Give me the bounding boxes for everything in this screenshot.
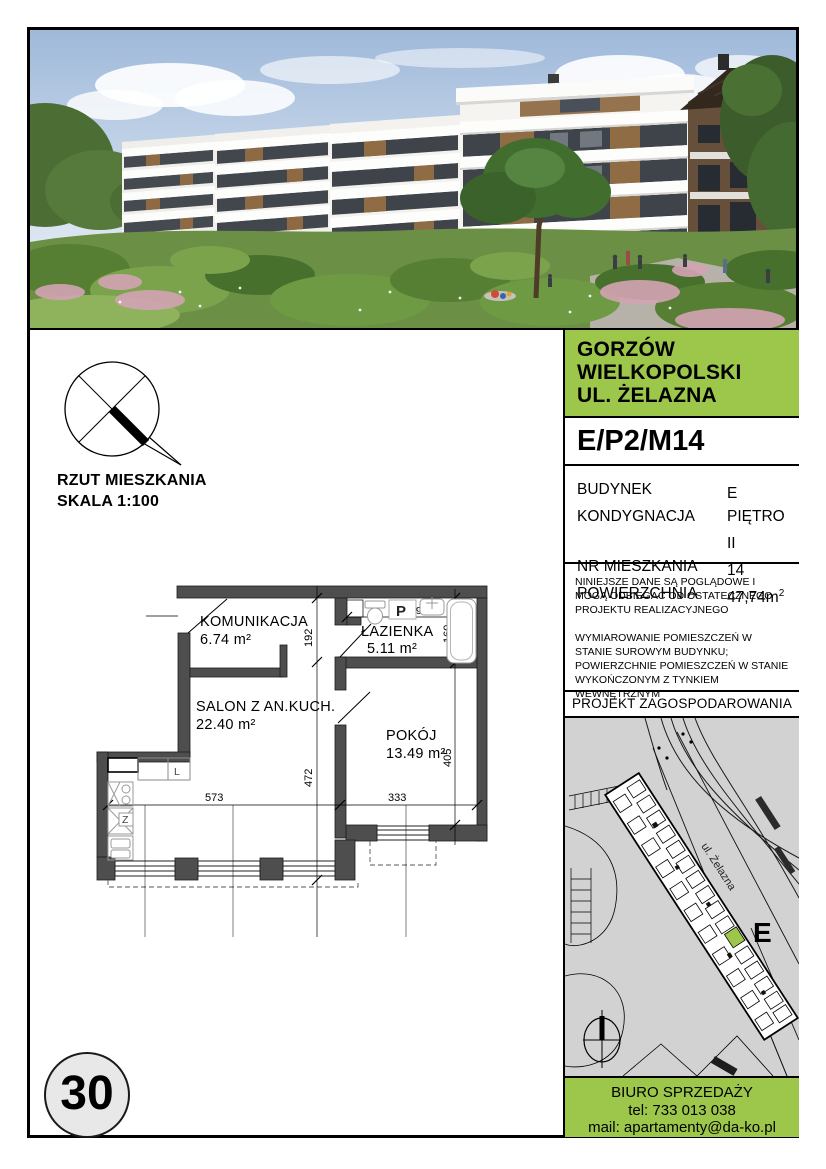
- room-name-komunikacja: KOMUNIKACJA: [200, 614, 308, 630]
- site-plan-drawing: ul. Żelazna E: [565, 718, 799, 1076]
- unit-code: E/P2/M14: [565, 418, 799, 466]
- site-plan-map: ul. Żelazna E: [565, 718, 799, 1078]
- toilet-bowl-icon: [368, 608, 383, 624]
- info-panel: GORZÓW WIELKOPOLSKI UL. ŻELAZNA E/P2/M14…: [563, 330, 799, 1135]
- room-area-pokoj: 13.49 m²: [386, 746, 446, 762]
- dim-salon-width: 573: [205, 792, 223, 804]
- room-area-salon: 22.40 m²: [196, 717, 256, 733]
- site-plan-title: PROJEKT ZAGOSPODAROWANIA TERENU: [565, 692, 799, 718]
- kitchen-sink-label: Z: [122, 814, 129, 826]
- building-label: E: [753, 917, 772, 948]
- detail-value: PIĘTRO II: [727, 505, 787, 555]
- toilet-icon: [365, 601, 385, 608]
- detail-label: KONDYGNACJA: [577, 505, 727, 555]
- detail-label: BUDYNEK: [577, 478, 727, 505]
- plan-caption-line2: SKALA 1:100: [57, 491, 207, 512]
- location-line1: GORZÓW: [577, 338, 787, 361]
- building-render-illustration: [30, 30, 796, 328]
- room-name-pokoj: POKÓJ: [386, 727, 437, 744]
- room-name-lazienka: ŁAZIENKA: [361, 624, 434, 640]
- location-line3: UL. ŻELAZNA: [577, 384, 787, 407]
- contact-office: BIURO SPRZEDAŻY: [565, 1084, 799, 1102]
- details-panel: BUDYNEK E KONDYGNACJA PIĘTRO II NR MIESZ…: [565, 466, 799, 564]
- washer-label: P: [396, 603, 406, 620]
- dim-entry: 192: [303, 629, 315, 647]
- plan-caption-line1: RZUT MIESZKANIA: [57, 470, 207, 491]
- dim-room-width: 333: [388, 792, 406, 804]
- detail-row-building: BUDYNEK E: [577, 478, 787, 505]
- detail-value: E: [727, 478, 737, 505]
- floor-plan-drawing: 573 333 294 192 472 160 405 P: [90, 575, 550, 945]
- page-number-badge: 30: [44, 1052, 130, 1138]
- disclaimer: NINIEJSZE DANE SĄ POGLĄDOWE I MOGĄ ODBIE…: [565, 564, 799, 692]
- contact-phone: tel: 733 013 038: [565, 1102, 799, 1120]
- contact-box: BIURO SPRZEDAŻY tel: 733 013 038 mail: a…: [565, 1078, 799, 1137]
- building-render-photo: [30, 30, 796, 330]
- apartment-block-mid-left: [215, 125, 330, 244]
- room-labels: KOMUNIKACJA 6.74 m² ŁAZIENKA 5.11 m² SAL…: [196, 614, 446, 762]
- location-line2: WIELKOPOLSKI: [577, 361, 787, 384]
- dim-salon-height: 472: [303, 769, 315, 787]
- kitchen-cabinet-icon: [108, 758, 138, 772]
- north-indicator-icon: [50, 352, 190, 472]
- room-area-komunikacja: 6.74 m²: [200, 632, 251, 648]
- room-area-lazienka: 5.11 m²: [367, 641, 417, 657]
- location-header: GORZÓW WIELKOPOLSKI UL. ŻELAZNA: [565, 330, 799, 418]
- disclaimer-paragraph-2: WYMIAROWANIE POMIESZCZEŃ W STANIE SUROWY…: [575, 631, 789, 701]
- contact-email: mail: apartamenty@da-ko.pl: [565, 1119, 799, 1137]
- room-name-salon: SALON Z AN.KUCH.: [196, 699, 335, 715]
- disclaimer-paragraph-1: NINIEJSZE DANE SĄ POGLĄDOWE I MOGĄ ODBIE…: [575, 575, 789, 617]
- plan-caption: RZUT MIESZKANIA SKALA 1:100: [57, 470, 207, 512]
- apartment-block-far: [122, 135, 215, 238]
- fridge-label: L: [174, 766, 180, 778]
- brochure-page: RZUT MIESZKANIA SKALA 1:100: [0, 0, 826, 1169]
- detail-row-floor: KONDYGNACJA PIĘTRO II: [577, 505, 787, 555]
